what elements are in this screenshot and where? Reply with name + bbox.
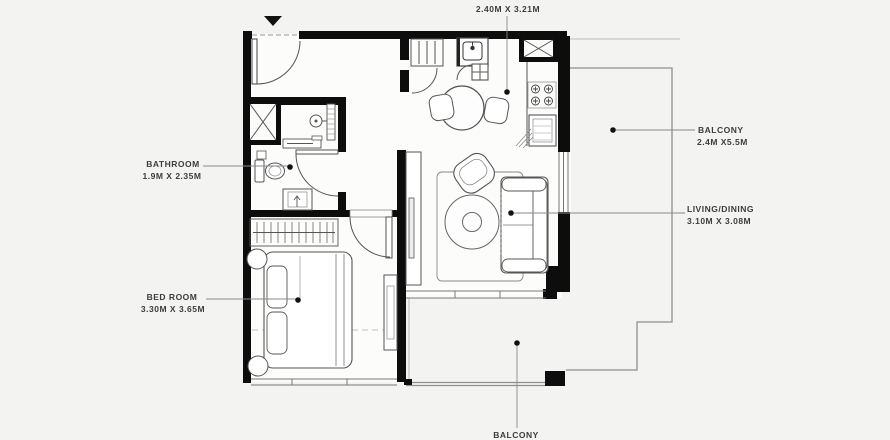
- round-rug: [445, 195, 499, 249]
- living-label: LIVING/DINING: [687, 204, 754, 214]
- wall: [558, 212, 570, 270]
- pillow: [267, 312, 287, 354]
- living-east-window: [557, 152, 571, 212]
- vanity-sink: [283, 189, 312, 210]
- bathroom-dim-label: 1.9M X 2.35M: [143, 171, 202, 181]
- dining-chair: [428, 93, 455, 122]
- kitchen-dim-label: 2.40M X 3.21M: [476, 4, 540, 14]
- bed: [264, 252, 352, 368]
- bedroom-dim-label: 3.30M X 3.65M: [141, 304, 205, 314]
- wall: [243, 210, 350, 217]
- pillow: [267, 266, 287, 308]
- wall: [546, 266, 570, 292]
- living-dot: [508, 210, 514, 216]
- balcony-bottom-label: BALCONY: [493, 430, 539, 440]
- wrap-balcony-edge: [566, 68, 672, 370]
- nightstand: [247, 249, 267, 269]
- dining-chair: [483, 96, 510, 125]
- bedroom-dresser: [384, 275, 397, 350]
- wall: [397, 150, 406, 382]
- floor-plan-drawing: 2.40M X 3.21M BATHROOM 1.9M X 2.35M BED …: [0, 0, 890, 440]
- balcony-bottom-dot: [514, 340, 520, 346]
- shaft-entry: [245, 99, 281, 145]
- wall: [243, 31, 251, 383]
- nightstand: [248, 356, 268, 376]
- wall: [558, 36, 570, 152]
- balcony-right-label: BALCONY: [698, 125, 744, 135]
- bathroom-label: BATHROOM: [146, 159, 199, 169]
- balcony-right-dot: [610, 127, 616, 133]
- wall: [404, 379, 412, 385]
- entrance-arrow-icon: [264, 16, 282, 26]
- wall: [400, 70, 409, 92]
- tv-unit: [406, 152, 421, 285]
- balcony-pillar: [545, 371, 565, 386]
- bathroom-dot: [287, 164, 293, 170]
- bottom-balcony-floor: [406, 298, 562, 382]
- shaft-kitchen: [519, 36, 558, 62]
- kitchen-dot: [504, 89, 510, 95]
- living-dim-label: 3.10M X 3.08M: [687, 216, 751, 226]
- bedroom-label: BED ROOM: [147, 292, 198, 302]
- wall: [338, 97, 346, 152]
- sofa: [501, 177, 548, 273]
- balcony-right-dim-label: 2.4M X5.5M: [697, 137, 748, 147]
- bedroom-dot: [295, 297, 301, 303]
- wall: [400, 39, 409, 60]
- kitchen-sink: [457, 38, 488, 66]
- floor-plan: 2.40M X 3.21M BATHROOM 1.9M X 2.35M BED …: [0, 0, 890, 440]
